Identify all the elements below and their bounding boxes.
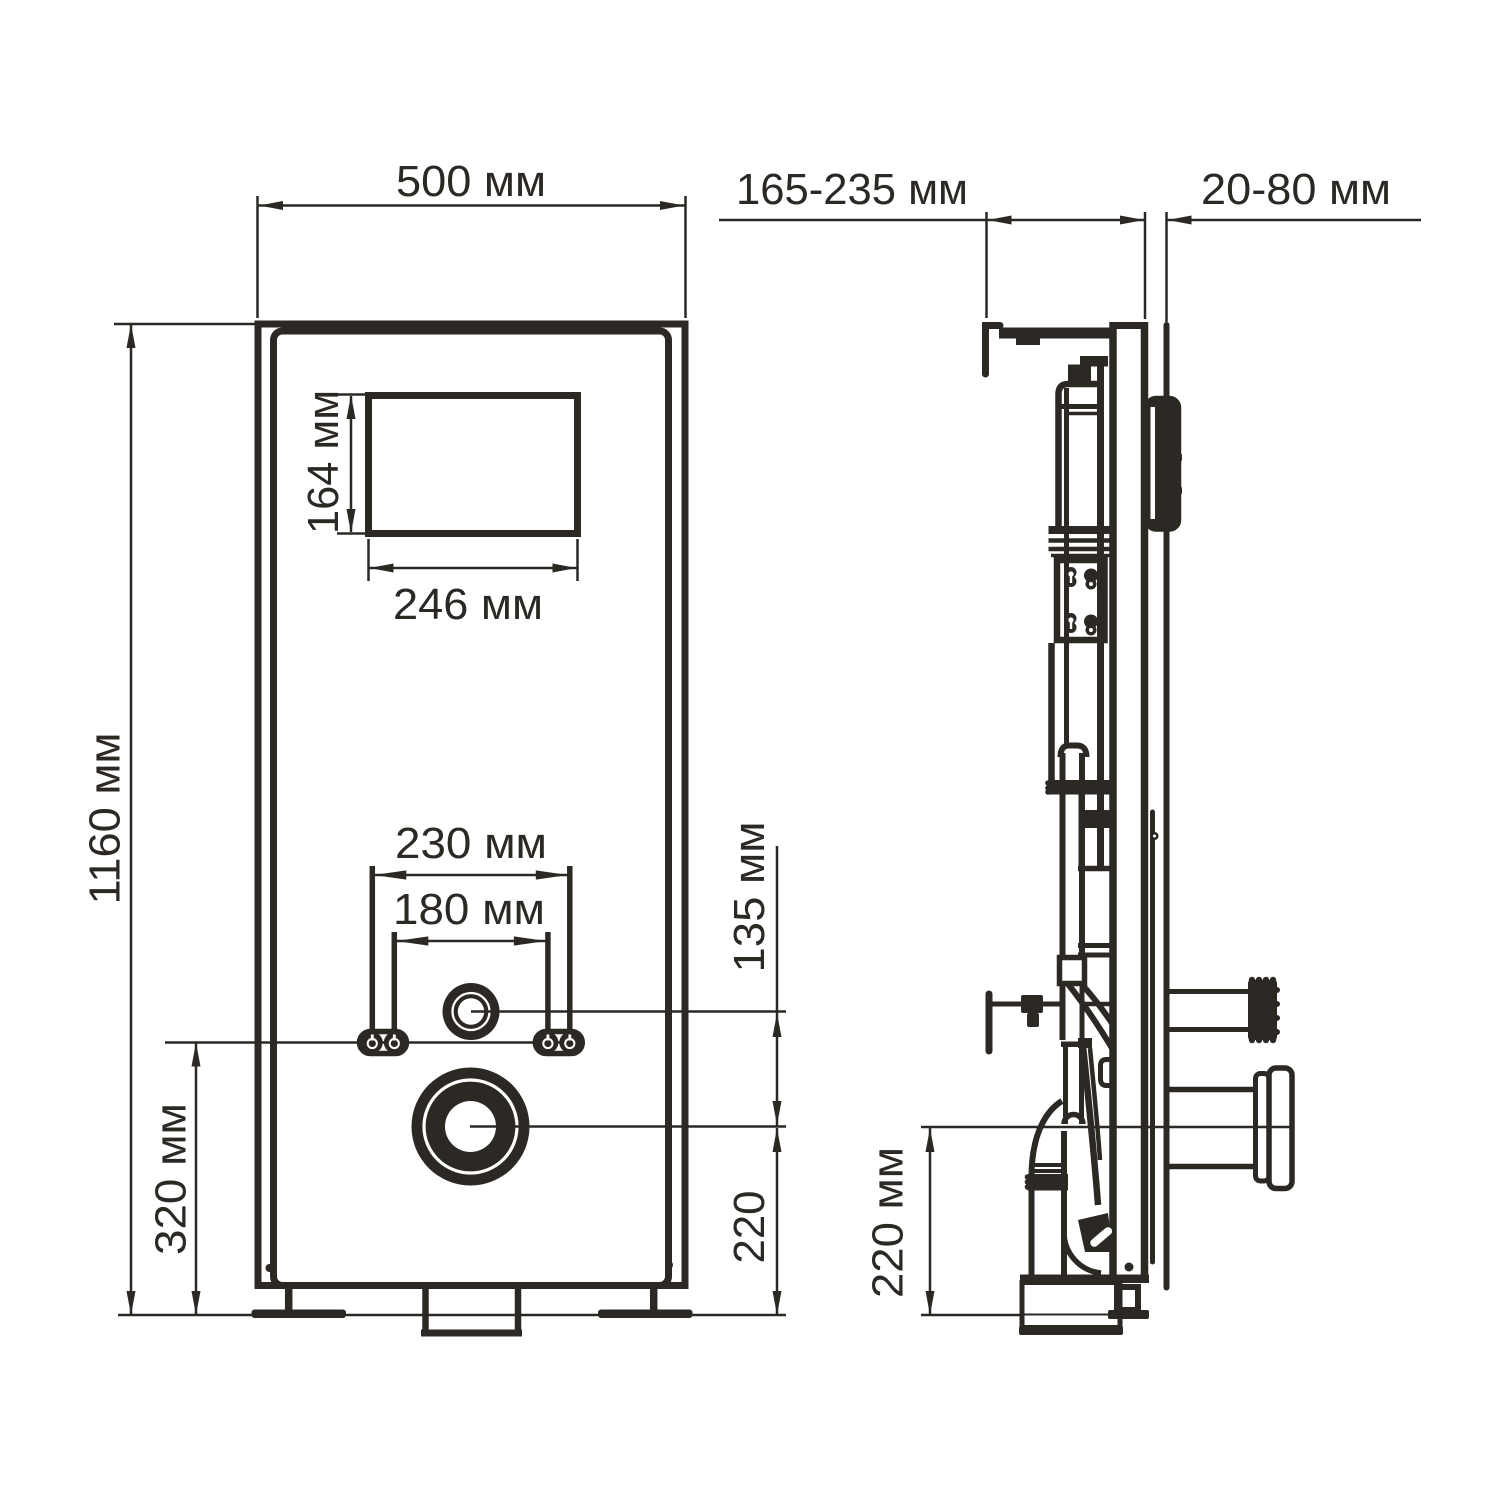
- svg-text:164 мм: 164 мм: [299, 390, 348, 534]
- svg-text:1160 мм: 1160 мм: [81, 733, 130, 905]
- svg-text:220 мм: 220 мм: [864, 1147, 913, 1298]
- svg-text:180 мм: 180 мм: [393, 885, 545, 934]
- svg-text:220: 220: [725, 1191, 774, 1264]
- svg-text:320 мм: 320 мм: [147, 1103, 196, 1255]
- svg-text:500 мм: 500 мм: [396, 157, 546, 206]
- svg-text:20-80 мм: 20-80 мм: [1201, 165, 1391, 214]
- svg-text:246 мм: 246 мм: [393, 580, 543, 629]
- svg-text:135 мм: 135 мм: [725, 822, 774, 973]
- svg-text:165-235 мм: 165-235 мм: [736, 165, 968, 214]
- svg-text:230 мм: 230 мм: [395, 819, 547, 868]
